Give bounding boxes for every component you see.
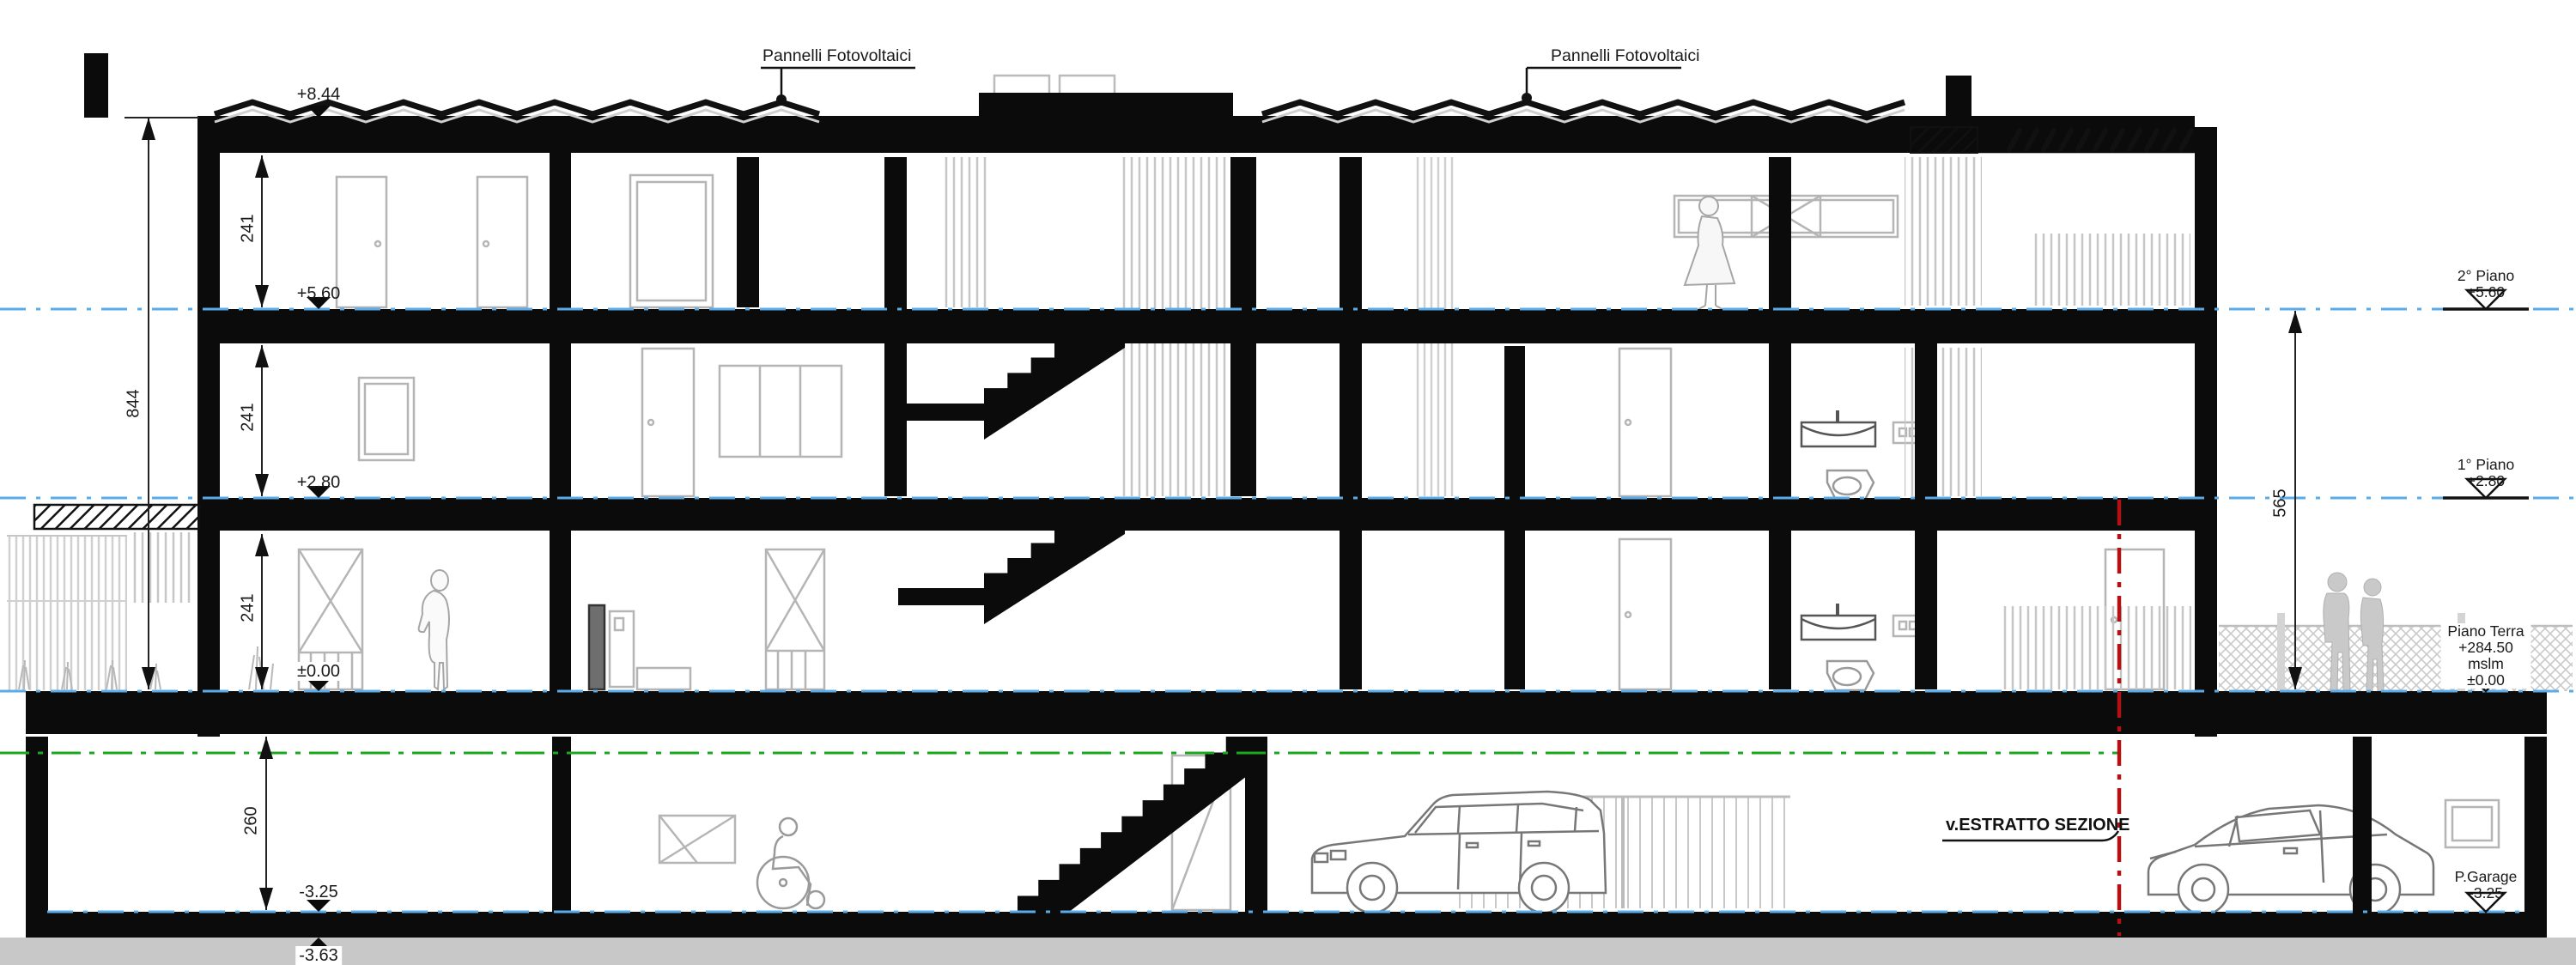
- level-elevation: +2.80: [2458, 473, 2514, 489]
- level-name: Piano Terra: [2445, 623, 2528, 640]
- level-elevation: +5.60: [2458, 284, 2514, 300]
- pv-label-left: Pannelli Fotovoltaici: [762, 46, 911, 65]
- roof-chimney-right: [1946, 76, 1971, 117]
- earth-band: [0, 938, 2576, 965]
- figure-woman-ground: [419, 570, 449, 689]
- level-name: 2° Piano: [2458, 268, 2514, 284]
- level-elevation: ±0.00: [2445, 672, 2528, 689]
- level-label-garage: P.Garage -3.25: [2455, 869, 2518, 901]
- figure-woman-floor2: [1685, 197, 1735, 309]
- level-altitude: +284.50 mslm: [2445, 640, 2528, 672]
- dim-right-total: 565: [2271, 489, 2291, 517]
- parapet-hatched: [1911, 127, 1978, 153]
- dim-total-height: 844: [125, 389, 144, 417]
- elev-ground: ±0.00: [294, 662, 343, 681]
- level-label-floor2: 2° Piano +5.60: [2458, 268, 2514, 300]
- level-label-floor1: 1° Piano +2.80: [2458, 457, 2514, 489]
- level-label-ground: Piano Terra +284.50 mslm ±0.00: [2441, 623, 2531, 689]
- car-coupe: [2148, 805, 2433, 914]
- left-garden-trellis: [7, 532, 195, 690]
- elev-foundation: -3.63: [295, 946, 342, 965]
- roof-chimney-left: [84, 53, 108, 118]
- louver-screens: [1118, 129, 2198, 689]
- level-elevation: -3.25: [2455, 885, 2518, 901]
- building-section-drawing: Pannelli Fotovoltaici Pannelli Fotovolta…: [0, 0, 2576, 965]
- floor1-slab: [197, 498, 2195, 531]
- elev-floor2: +5.60: [297, 284, 341, 303]
- dim-storey-2: 241: [239, 214, 258, 242]
- elev-garage: -3.25: [299, 883, 338, 901]
- dim-garage-height: 260: [242, 806, 262, 835]
- level-name: P.Garage: [2455, 869, 2518, 885]
- balcony-hatched-slab: [34, 505, 199, 529]
- elevation-triangles-right: [2443, 290, 2529, 912]
- ground-details: [299, 539, 2164, 689]
- ground-slab: [26, 691, 2547, 734]
- dim-storey-1: 241: [239, 403, 258, 431]
- floor2-slab: [197, 309, 2195, 343]
- section-svg: [0, 0, 2576, 965]
- dim-storey-ground: 241: [239, 593, 258, 622]
- roof-stair-bulkhead: [979, 93, 1233, 153]
- elev-roof: +8.44: [297, 85, 341, 104]
- bathroom-fixtures: [1801, 410, 1923, 690]
- stair-landing-1: [898, 588, 984, 605]
- garage-floor-slab: [26, 912, 2547, 938]
- structure-black: [26, 53, 2547, 938]
- elev-floor1: +2.80: [297, 473, 341, 492]
- pv-label-right: Pannelli Fotovoltaici: [1551, 46, 1699, 65]
- stair-landing-2: [898, 404, 984, 421]
- section-extract-label: v.ESTRATTO SEZIONE: [1946, 816, 2129, 835]
- figure-wheelchair-garage: [757, 818, 824, 908]
- level-name: 1° Piano: [2458, 457, 2514, 473]
